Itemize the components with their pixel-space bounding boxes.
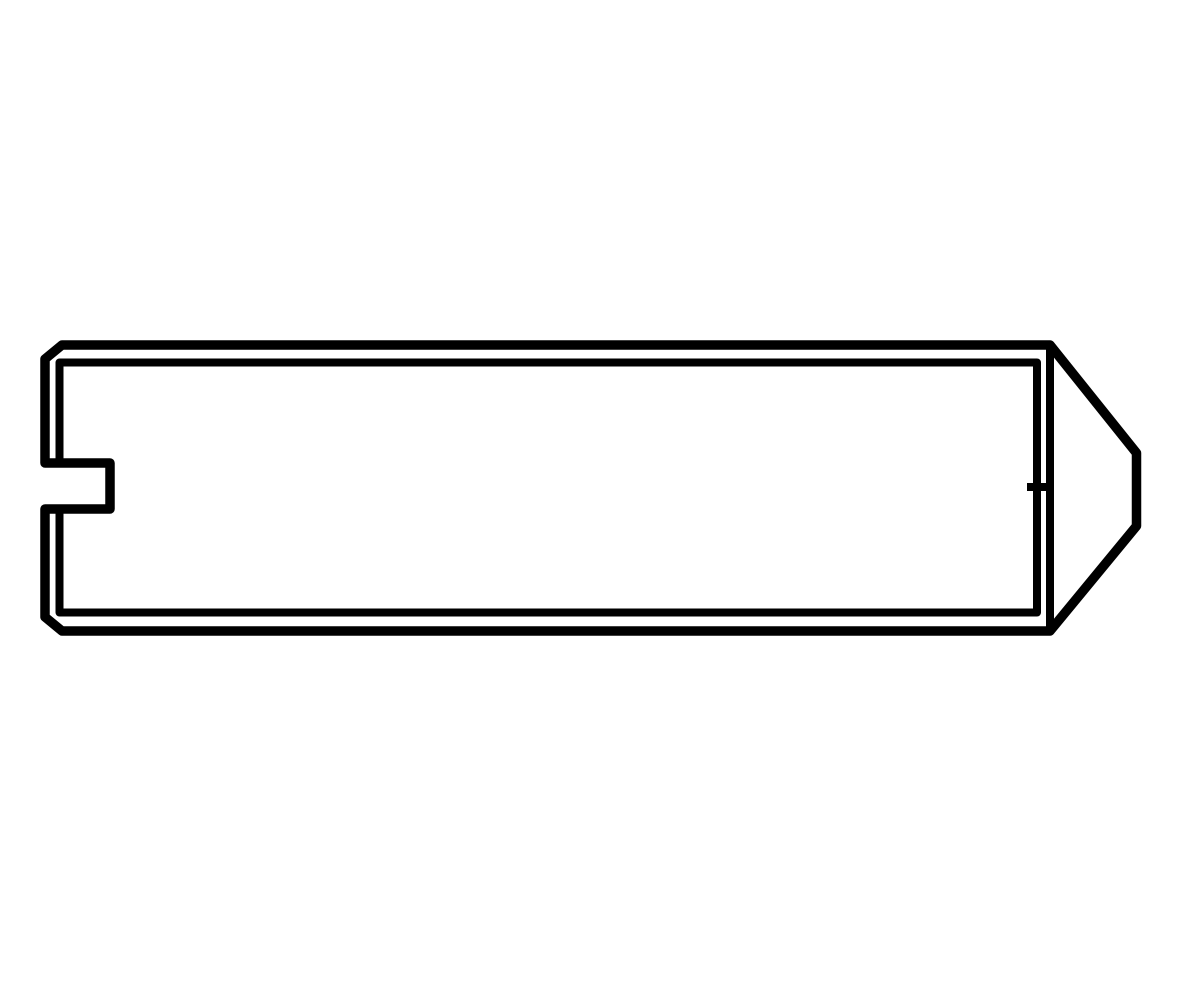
set-screw-technical-drawing <box>0 0 1200 1000</box>
drawing-stage <box>0 0 1200 1000</box>
drawing-background <box>0 0 1200 1000</box>
